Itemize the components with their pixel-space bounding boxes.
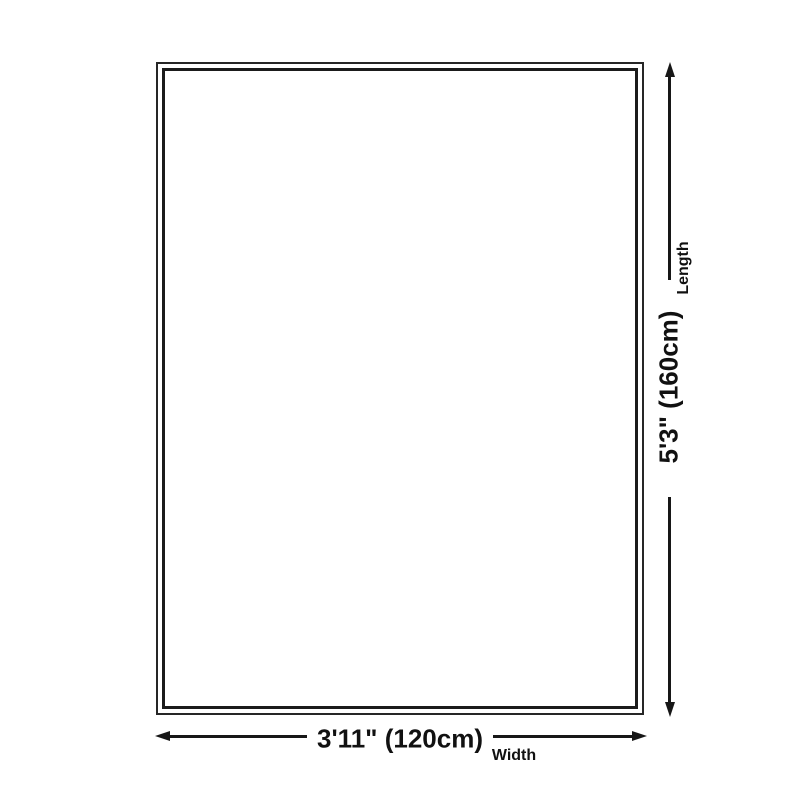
rug-dimension-diagram: Length 5'3" (160cm) 3'11" (120cm) Width [0,0,800,800]
arrow-up-icon [665,62,675,77]
rug-outline-inner [162,68,638,709]
arrow-down-icon [665,702,675,717]
width-label: Width [492,747,536,765]
length-arrow-line-lower [668,497,671,703]
length-label: Length [675,241,693,294]
length-arrow-line-upper [668,76,671,280]
rug-outline-outer [156,62,644,715]
width-value: 3'11" (120cm) [317,724,483,755]
width-arrow-line-left [167,735,307,738]
width-arrow-line-right [493,735,634,738]
length-value: 5'3" (160cm) [654,311,685,464]
arrow-right-icon [632,731,647,741]
